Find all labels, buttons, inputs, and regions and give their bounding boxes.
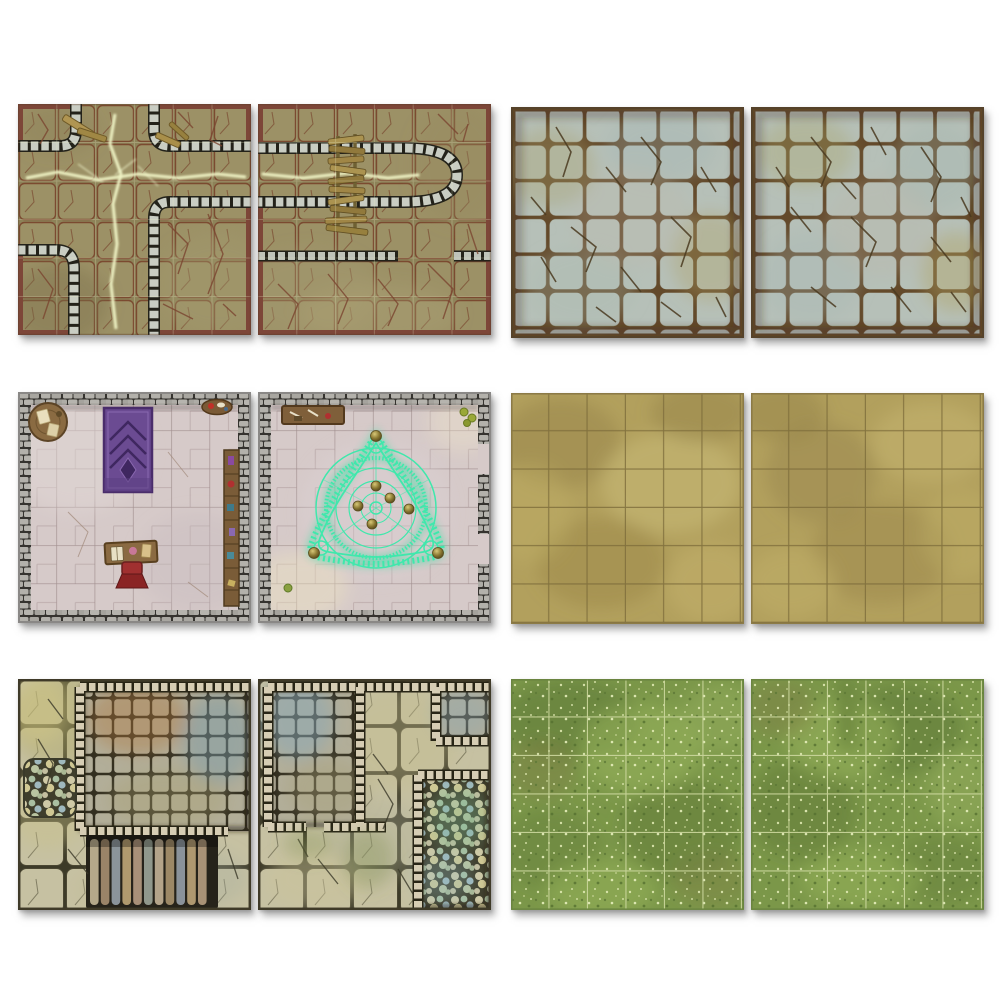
staircase xyxy=(86,835,218,909)
tile-chamber-mosaic xyxy=(258,679,491,910)
tile-set-study-ritual xyxy=(18,392,491,623)
writing-desk xyxy=(105,541,158,565)
round-table xyxy=(29,403,67,441)
tile-grass-a xyxy=(511,679,744,910)
tile-set-stream-corridor xyxy=(18,104,491,335)
oval-side-table xyxy=(202,400,232,415)
tile-flagstone-b xyxy=(751,107,984,338)
product-image-canvas xyxy=(0,0,1000,1000)
pebble-mosaic-patch xyxy=(24,759,76,817)
tile-chamber-stairs xyxy=(18,679,251,910)
tile-study-room xyxy=(18,392,251,623)
work-table xyxy=(282,406,344,424)
tile-set-sand-floor xyxy=(511,393,984,624)
tile-set-cracked-flagstone xyxy=(511,107,984,338)
grid-lines xyxy=(751,393,984,624)
purple-rug xyxy=(104,408,152,492)
grid-lines xyxy=(511,393,744,624)
mosaic-room xyxy=(413,775,491,909)
tile-grass-b xyxy=(751,679,984,910)
tile-set-grass-field xyxy=(511,679,984,910)
bookshelf xyxy=(224,450,239,606)
tile-sand-b xyxy=(751,393,984,624)
left-tiled-room xyxy=(263,679,368,827)
small-item xyxy=(284,584,292,592)
small-tile-room xyxy=(80,684,251,831)
tile-stream-crossroads xyxy=(18,104,251,335)
top-right-tiled-room xyxy=(433,687,491,741)
grid-lines xyxy=(511,679,744,910)
tile-ritual-chamber xyxy=(258,392,491,623)
tile-set-dungeon-chambers xyxy=(18,679,491,910)
tile-flagstone-a xyxy=(511,107,744,338)
grid-lines xyxy=(751,679,984,910)
tile-sand-a xyxy=(511,393,744,624)
tile-stream-bridge xyxy=(258,104,491,335)
